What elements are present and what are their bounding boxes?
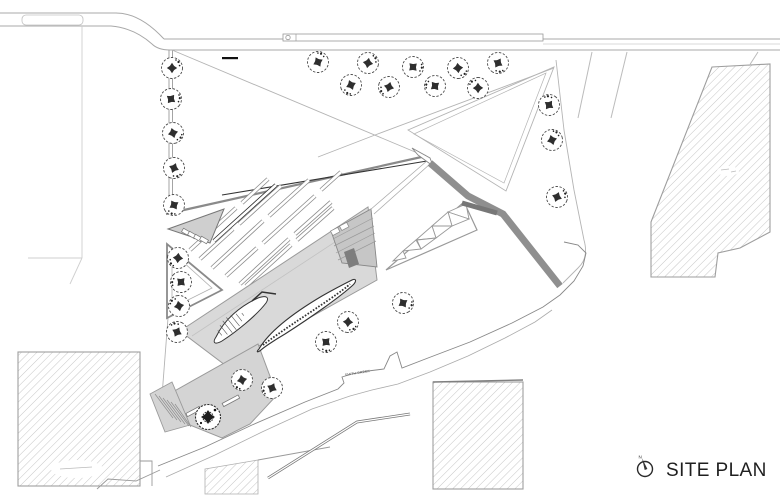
existing-building-s <box>433 380 523 489</box>
tree-symbol <box>166 267 196 297</box>
tree-symbol <box>160 154 187 181</box>
north-label: N <box>639 455 642 460</box>
tree-symbol <box>398 52 428 82</box>
scale-bar <box>222 57 238 59</box>
site-plan-sheet: SMITH CREEK N SITE PLAN <box>0 0 780 504</box>
west-curb-lines <box>28 26 82 284</box>
tree-symbol <box>167 294 192 319</box>
site-plan-drawing: SMITH CREEK N SITE PLAN <box>0 0 780 504</box>
truss-canopy <box>386 202 477 270</box>
tree-symbol <box>544 184 571 211</box>
illegible-label-blob <box>51 460 103 478</box>
tree-symbol <box>337 311 359 333</box>
tree-symbol <box>467 77 488 98</box>
tree-symbol <box>163 318 191 346</box>
site-plan-title: SITE PLAN <box>666 460 767 481</box>
retaining-wall-path <box>268 414 410 478</box>
dense-tree-symbol <box>196 405 221 430</box>
tree-symbol <box>337 71 364 98</box>
tree-symbol <box>539 127 565 153</box>
small-hatch-patch <box>205 447 330 494</box>
title-block: N SITE PLAN <box>638 455 767 482</box>
tree-symbol <box>160 191 189 220</box>
parking-bar <box>214 185 276 241</box>
road-network <box>0 13 780 118</box>
creek-label: SMITH CREEK <box>345 369 371 377</box>
tree-symbol <box>534 90 563 119</box>
parking-bar <box>239 186 281 224</box>
parking-bar <box>212 221 263 268</box>
parking-bar <box>263 196 315 243</box>
tree-symbol <box>304 48 332 76</box>
tree-symbol <box>420 71 449 100</box>
tree-symbol <box>160 120 186 146</box>
tree-symbol <box>311 327 341 357</box>
tree-symbol <box>376 74 402 100</box>
tree-symbol <box>167 247 190 270</box>
existing-building-ne <box>651 64 770 277</box>
north-arrow-icon: N <box>638 455 653 477</box>
tree-symbol <box>162 58 183 79</box>
tree-symbol <box>156 84 185 113</box>
tree-symbol <box>446 56 469 79</box>
parking-bar <box>321 172 341 190</box>
existing-building-sw <box>18 352 140 486</box>
tree-symbol <box>484 49 513 78</box>
tree-symbol <box>356 51 380 75</box>
tree-symbol <box>388 288 417 317</box>
diagonal-promenade <box>166 156 427 214</box>
